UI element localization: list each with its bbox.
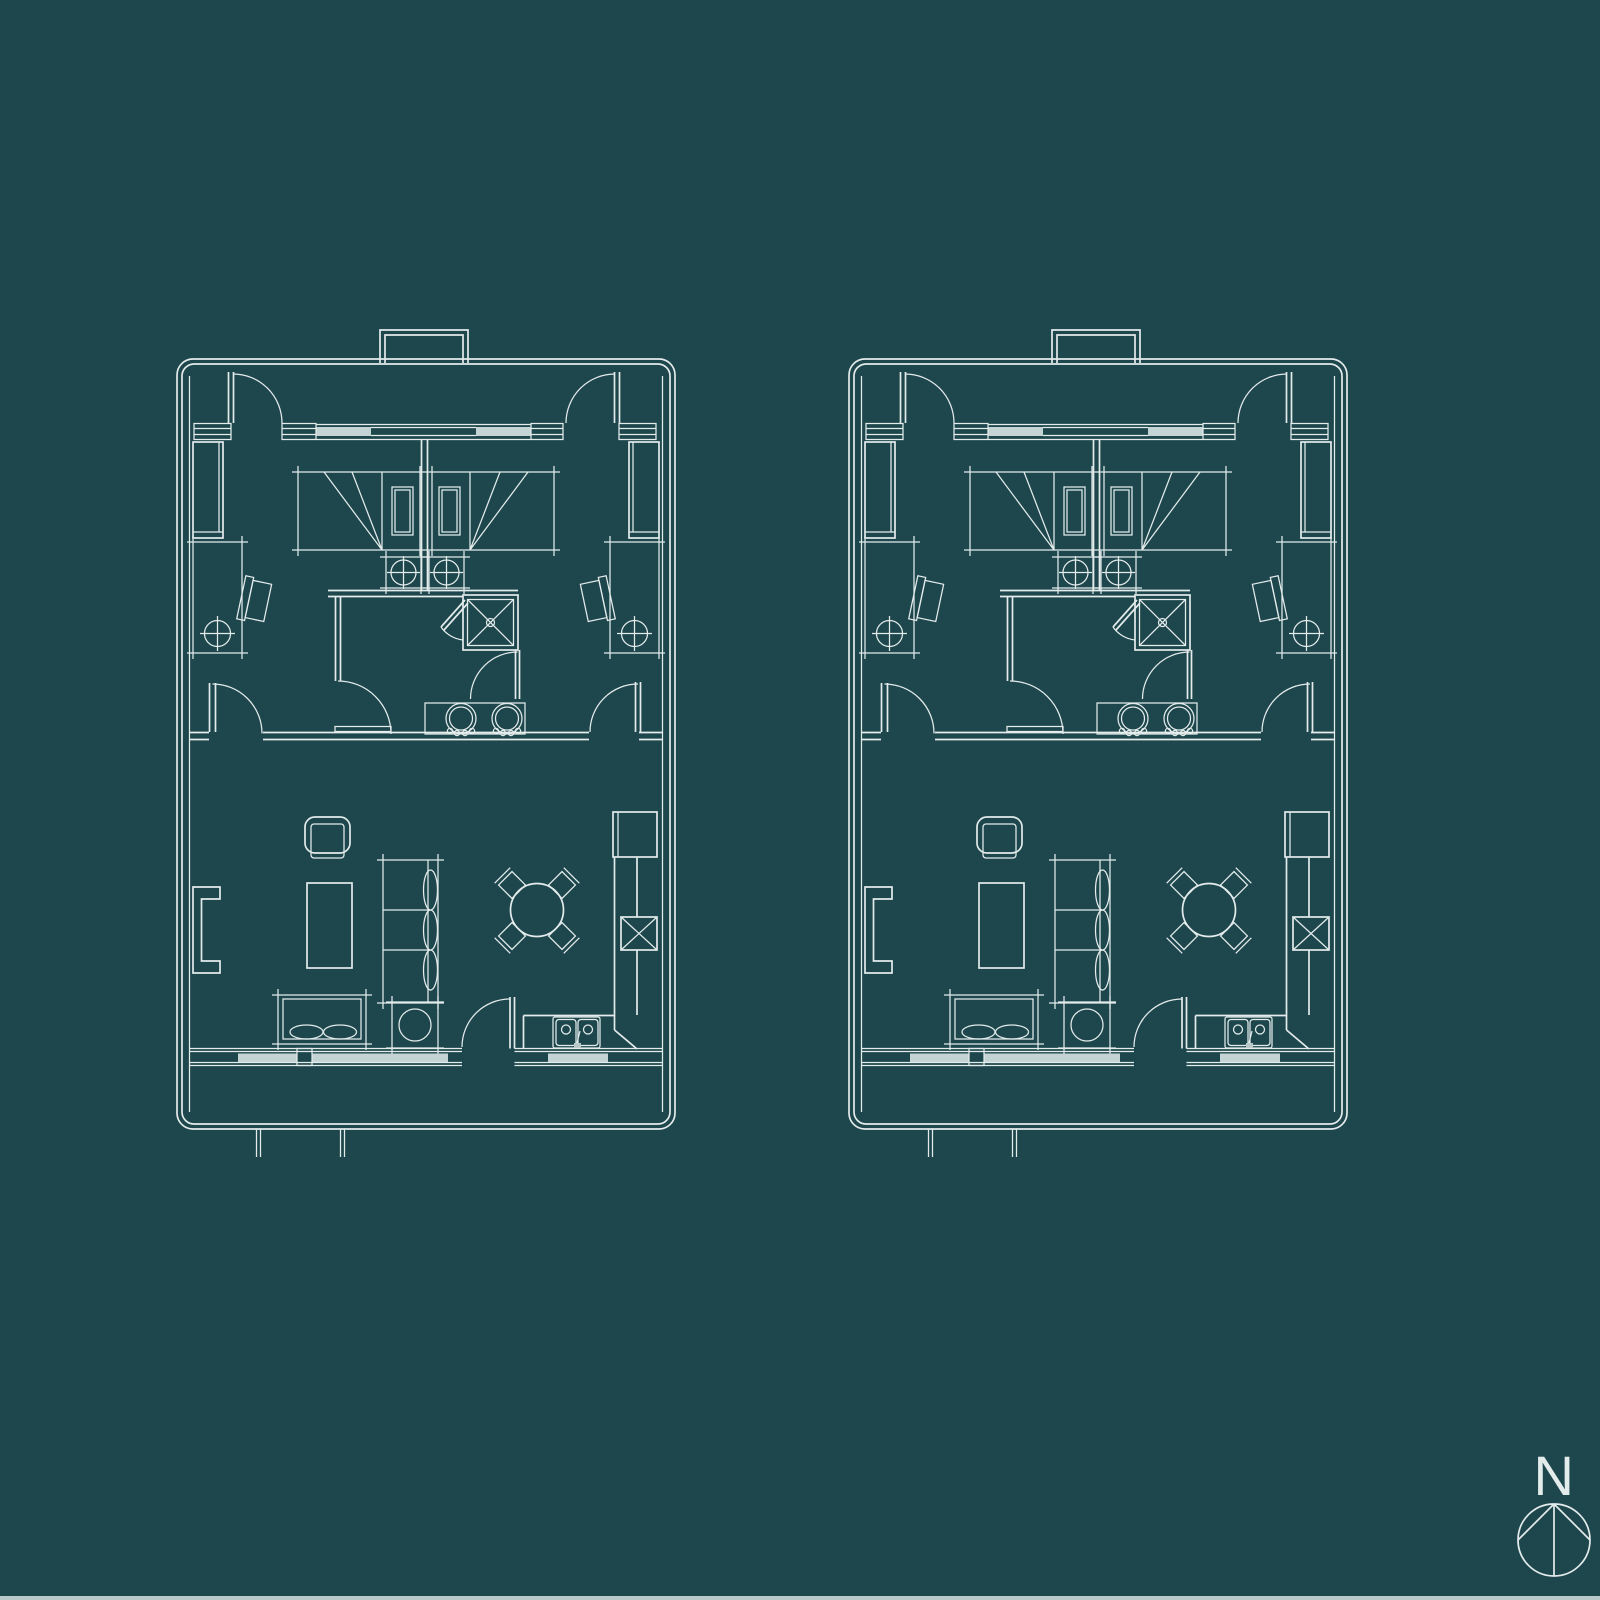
floor-plan-right <box>849 330 1347 1157</box>
blueprint-canvas: N <box>0 0 1600 1600</box>
north-arrow-icon <box>1518 1504 1590 1576</box>
floor-plan-drawing: N <box>0 0 1600 1600</box>
north-label: N <box>1534 1444 1575 1507</box>
bottom-edge-strip <box>0 1596 1600 1600</box>
north-compass: N <box>1518 1444 1590 1576</box>
floor-plan-left <box>177 330 675 1157</box>
